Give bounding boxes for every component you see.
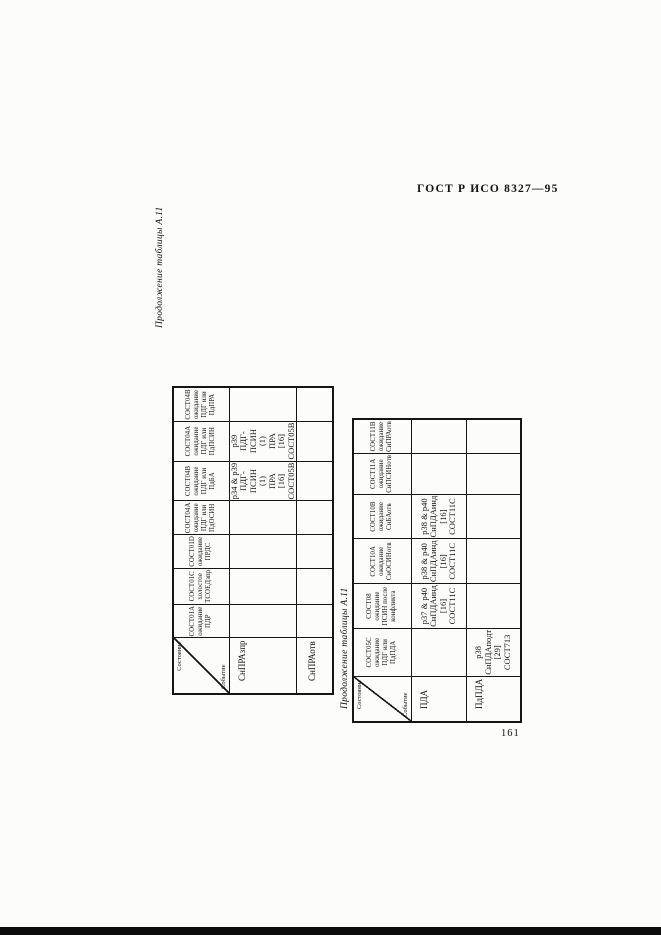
scan-edge-artifact: [0, 927, 661, 935]
state-header-cell: СОСТ10А ожидание СнОСИНотв: [353, 539, 411, 584]
transition-cell: [297, 421, 333, 461]
transition-cell: [466, 419, 521, 453]
transition-cell: [229, 387, 297, 421]
corner-cell: Состояние Событие: [353, 676, 411, 722]
event-row-label: СнПРАотв: [297, 638, 333, 694]
transition-cell: [466, 453, 521, 494]
transition-cell: [297, 535, 333, 569]
transition-cell: р38 СнПДАподт [29] СОСТ713: [466, 628, 521, 676]
transition-cell: [297, 501, 333, 535]
state-table-1: Состояние Событие СОСТ01А ожидание ПДР С…: [172, 386, 334, 695]
transition-cell: [466, 494, 521, 539]
table1-wrap: Состояние Событие СОСТ01А ожидание ПДР С…: [172, 210, 328, 695]
table2-wrap: Состояние Событие СОСТ05С ожидание ПДГ и…: [352, 212, 520, 723]
transition-cell: [297, 568, 333, 604]
transition-cell: р39 ПДГ-ПСИН (1) ПРА [16] СОСТ05В: [229, 421, 297, 461]
transition-cell: [466, 539, 521, 584]
state-header-cell: СОСТ05С ожидание ПДГ или ПдПДА: [353, 628, 411, 676]
transition-cell: [297, 461, 333, 501]
state-header-cell: СОСТ11А ожидание СнПСИНотв: [353, 453, 411, 494]
transition-cell: [411, 628, 466, 676]
page-number: 161: [501, 728, 520, 739]
transition-cell: [297, 604, 333, 638]
event-row-label: СнПРАзпр: [229, 638, 297, 694]
transition-cell: [229, 568, 297, 604]
transition-cell: р34 & р39 ПДГ-ПСИН (1) ПРА [16] СОСТ05В: [229, 461, 297, 501]
document-header: ГОСТ Р ИСО 8327—95: [417, 183, 559, 195]
corner-event-label: Событие: [220, 665, 227, 689]
state-header-cell: СОСТ04А ожидание ПДГ или ПдОСИН: [173, 501, 229, 535]
state-header-cell: СОСТ04А ожидание ПДГ или ПдПСИН: [173, 421, 229, 461]
state-header-cell: СОСТ01С холостое ТСОЕДзпр: [173, 568, 229, 604]
table2-caption: Продолжение таблицы А.11: [339, 587, 352, 709]
table1-caption: Продолжение таблицы А.11: [154, 203, 167, 328]
corner-cell: Состояние Событие: [173, 638, 229, 694]
transition-cell: [466, 584, 521, 629]
transition-cell: [229, 501, 297, 535]
state-header-cell: СОСТ01D ожидание ПРДС: [173, 535, 229, 569]
state-header-cell: СОСТ04В ожидание ПДГ или ПдПРА: [173, 387, 229, 421]
corner-state-label: Состояние: [356, 680, 363, 709]
transition-cell: [297, 387, 333, 421]
corner-event-label: Событие: [402, 693, 409, 717]
transition-cell: р37 & р40 СнПДАинд [16] СОСТ11С: [411, 584, 466, 629]
state-header-cell: СОСТ08 ожидание ПСИН после конфликта: [353, 584, 411, 629]
transition-cell: [411, 453, 466, 494]
corner-state-label: Состояние: [176, 641, 183, 670]
transition-cell: р38 & р40 СнПДАинд [16] СОСТ11С: [411, 494, 466, 539]
state-header-cell: СОСТ01А ожидание ПДР: [173, 604, 229, 638]
scanned-standard-page: ГОСТ Р ИСО 8327—95 Продолжение таблицы А…: [0, 0, 661, 935]
event-row-label: ПдПДА: [466, 676, 521, 722]
state-header-cell: СОСТ10В ожидание СнБАотв: [353, 494, 411, 539]
transition-cell: р38 & р40 СнПДАинд [16] СОСТ11С: [411, 539, 466, 584]
state-table-2: Состояние Событие СОСТ05С ожидание ПДГ и…: [352, 418, 522, 723]
event-row-label: ПДА: [411, 676, 466, 722]
transition-cell: [229, 604, 297, 638]
transition-cell: [229, 535, 297, 569]
state-header-cell: СОСТ04В ожидание ПДГ или ПдБА: [173, 461, 229, 501]
state-header-cell: СОСТ11В ожидание СнПРАотв: [353, 419, 411, 453]
transition-cell: [411, 419, 466, 453]
